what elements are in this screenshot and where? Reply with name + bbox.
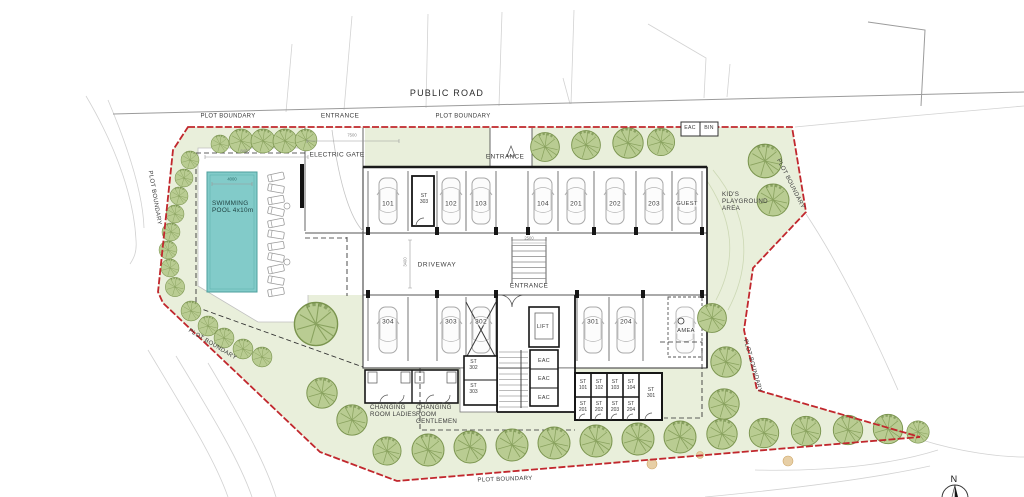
eac-room-1-label: EAC: [538, 358, 550, 364]
st-102-label: ST 102: [592, 380, 606, 391]
st-202-label: ST 202: [592, 402, 606, 413]
plot-boundary-label-top-right: PLOT BOUNDARY: [435, 114, 490, 121]
dim-pool-width: 4000: [227, 178, 236, 183]
electric-gate-bar: [300, 164, 304, 208]
lift-label: LIFT: [537, 324, 549, 330]
dim-entrance-width: 7500: [347, 134, 356, 139]
dim-stair-width: 2500: [524, 237, 533, 242]
driveway-label: DRIVEWAY: [418, 261, 457, 268]
parking-space-304-label: 304: [381, 318, 395, 325]
parking-space-104-label: 104: [536, 200, 550, 207]
parking-space-302-label: 302: [474, 318, 488, 325]
parking-space-203-label: 203: [647, 200, 661, 207]
electric-gate-label: ELECTRIC GATE: [309, 151, 364, 158]
entrance-label-mid: ENTRANCE: [486, 153, 524, 160]
storage-upper-label: ST 303: [416, 194, 432, 205]
st-104-label: ST 104: [624, 380, 638, 391]
st-203-label: ST 203: [608, 402, 622, 413]
st-301-label: ST 301: [643, 388, 659, 399]
entrance-label-top: ENTRANCE: [321, 112, 359, 119]
eac-room-3-label: EAC: [538, 395, 550, 401]
north-label: N: [951, 474, 958, 484]
eac-bin-eac-label: EAC: [684, 126, 696, 132]
parking-space-202-label: 202: [608, 200, 622, 207]
site-plan: PUBLIC ROAD PLOT BOUNDARY ENTRANCE PLOT …: [0, 0, 1024, 497]
entrance-label-bottom: ENTRANCE: [510, 282, 548, 289]
eac-bin-bin-label: BIN: [704, 126, 714, 132]
driveway-mouth: [303, 231, 365, 295]
st-303-label: ST 303: [466, 384, 481, 395]
site-plan-drawing: [0, 0, 1024, 497]
st-101-label: ST 101: [576, 380, 590, 391]
plot-boundary-label-top-left: PLOT BOUNDARY: [200, 114, 255, 121]
st-302-label: ST 302: [466, 360, 481, 371]
parking-space-204-label: 204: [619, 318, 633, 325]
parking-space-101-label: 101: [381, 200, 395, 207]
dim-driveway-width: 3400: [404, 257, 409, 266]
parking-space-102-label: 102: [444, 200, 458, 207]
parking-space-301-label: 301: [586, 318, 600, 325]
entrance-walkway: [490, 128, 532, 168]
changing-room-gentlemen-label: CHANGING ROOM GENTLEMEN: [416, 405, 472, 426]
swimming-pool-label: SWIMMING POOL 4x10m: [212, 200, 254, 214]
north-arrow-icon: [942, 485, 968, 497]
kids-playground-label: KID'S PLAYGROUND AREA: [722, 192, 778, 213]
parking-space-103-label: 103: [474, 200, 488, 207]
st-103-label: ST 103: [608, 380, 622, 391]
st-204-label: ST 204: [624, 402, 638, 413]
parking-space-guest-label: GUEST: [675, 201, 698, 207]
dim-deck-width: 8400: [240, 150, 249, 155]
amea-stall-label: AMEA: [676, 328, 696, 334]
public-road-label: PUBLIC ROAD: [410, 88, 484, 98]
parking-space-303-label: 303: [444, 318, 458, 325]
swimming-pool: [207, 172, 257, 292]
st-201-label: ST 201: [576, 402, 590, 413]
road-lines: [113, 22, 1024, 114]
changing-room-ladies-label: CHANGING ROOM LADIES: [370, 405, 418, 419]
eac-room-2-label: EAC: [538, 376, 550, 382]
parking-space-201-label: 201: [569, 200, 583, 207]
